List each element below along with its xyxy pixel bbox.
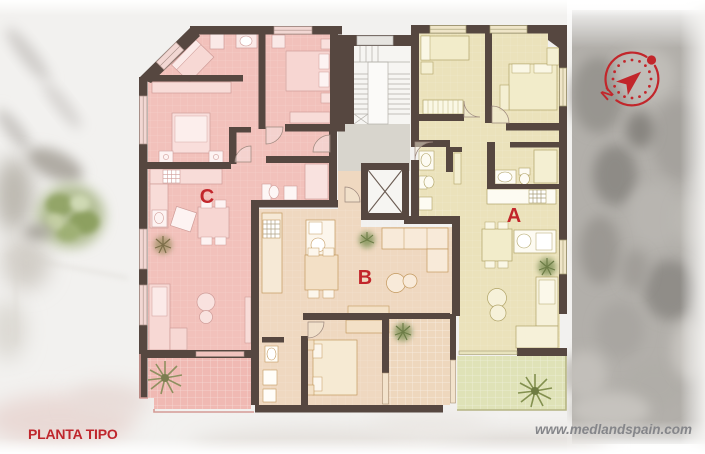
- svg-text:C: C: [200, 186, 214, 208]
- svg-text:A: A: [507, 205, 521, 227]
- svg-text:B: B: [358, 267, 372, 289]
- svg-text:www.medlandspain.com: www.medlandspain.com: [535, 422, 692, 437]
- svg-text:PLANTA TIPO: PLANTA TIPO: [28, 426, 118, 442]
